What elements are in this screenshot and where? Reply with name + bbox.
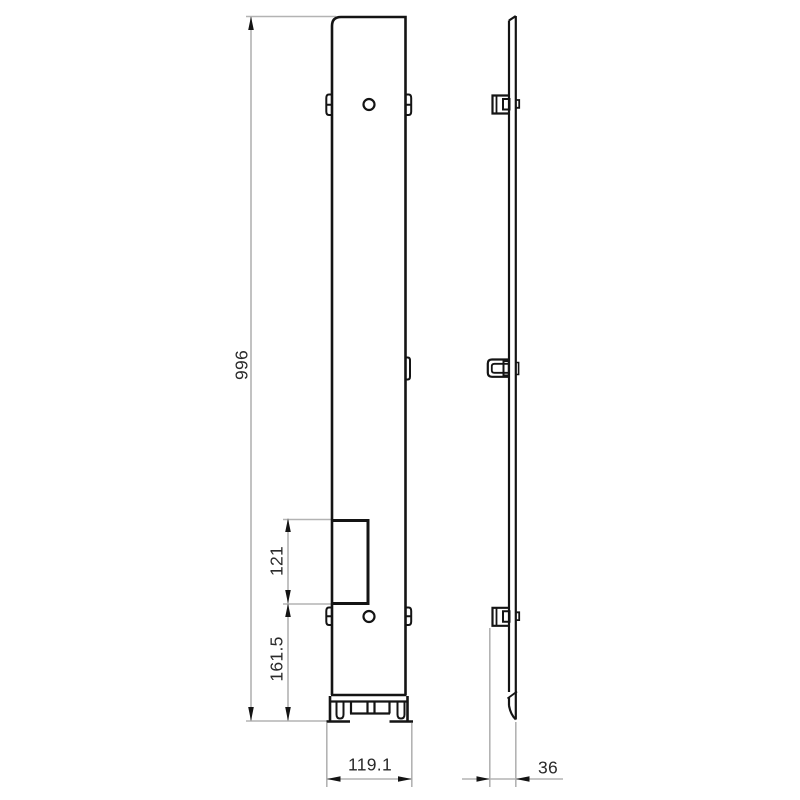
arrow-121-bottom (285, 590, 291, 604)
dim-label-front-width: 119.1 (348, 755, 392, 776)
side-view (488, 16, 519, 720)
side-clip-middle (488, 360, 519, 377)
base-slot-right (398, 702, 405, 719)
clip-bottom-block (503, 611, 510, 622)
front-base (327, 695, 414, 722)
dim-label-side-depth: 36 (538, 758, 558, 779)
dimension-arrows (248, 17, 529, 782)
arrow-119-left (327, 776, 341, 782)
front-view (326, 17, 413, 722)
dim-label-overall-height: 996 (232, 350, 253, 380)
arrow-161-bottom (285, 707, 291, 721)
front-hole-bottom (364, 611, 375, 622)
dim-label-bottom-section-height: 161.5 (267, 636, 288, 681)
base-rungs (351, 702, 390, 714)
dim-label-cutout-height: 121 (267, 546, 288, 576)
arrow-996-bottom (248, 707, 254, 721)
arrow-121-top (285, 519, 291, 533)
base-slot-left (337, 702, 344, 719)
clip-middle-inner (492, 364, 509, 373)
front-hole-top (364, 99, 375, 110)
arrow-996-top (248, 17, 254, 31)
drawing-canvas: 996 121 161.5 119.1 36 (0, 0, 800, 800)
arrow-36-right (516, 776, 530, 782)
front-cutout (333, 521, 368, 604)
arrow-161-top (285, 604, 291, 618)
clip-top-block (503, 99, 510, 110)
arrow-36-left (477, 776, 490, 782)
arrow-119-right (398, 776, 412, 782)
technical-drawing-svg (0, 0, 800, 800)
